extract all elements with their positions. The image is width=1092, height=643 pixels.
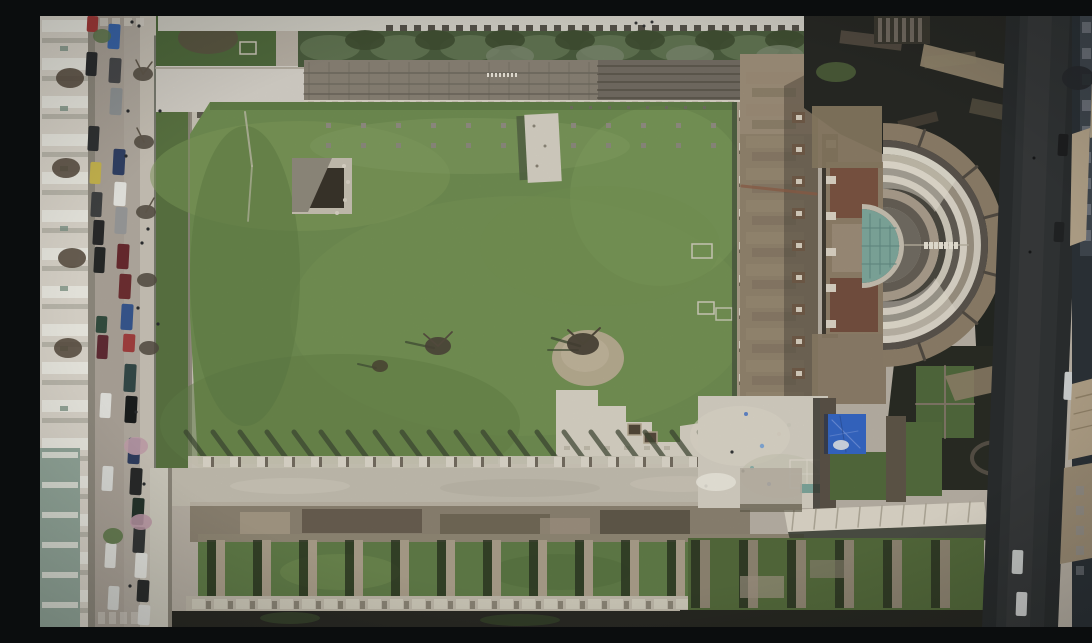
aerial-photo-canvas <box>40 16 1092 627</box>
aerial-photograph <box>40 16 1092 627</box>
vignette-overlay <box>40 16 1092 627</box>
